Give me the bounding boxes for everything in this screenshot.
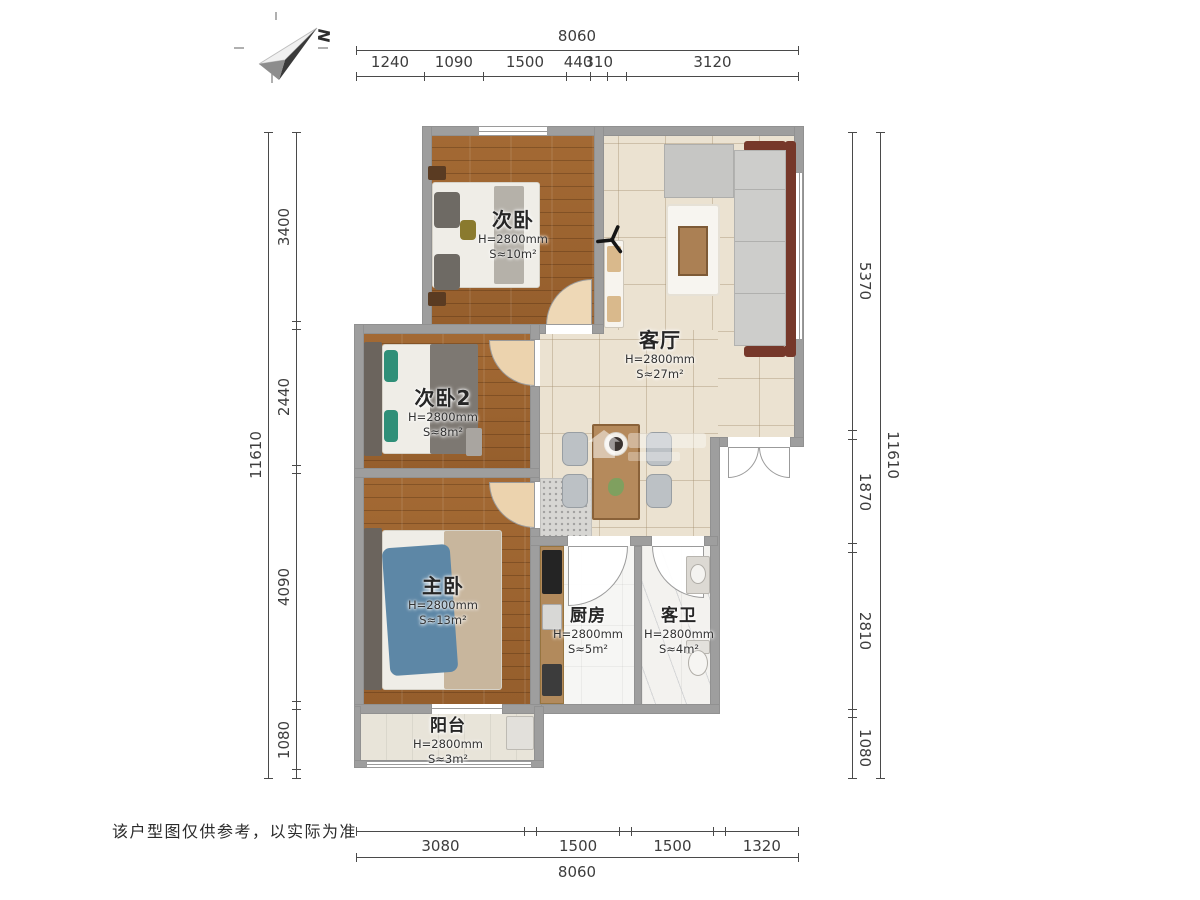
wall-left-mid [354,324,364,714]
wall-bedroom-bottom [354,324,546,334]
room-height: H=2800mm [383,410,503,425]
watermark-text-ghost [628,452,680,461]
north-arrow-icon [243,16,333,86]
dimension-label: 11610 [884,431,902,479]
room-name: 客卫 [630,606,728,627]
dimension-label: 1090 [435,53,473,71]
dimension-chain-left-total: 11610 [248,132,278,778]
wall-bedroom-divider [354,468,540,478]
room-area: S≈8m² [383,425,503,440]
dimension-segment: 11610 [248,132,278,778]
dimension-segment: 1870 [844,440,874,544]
room-name: 主卧 [383,574,503,598]
coffee-table [678,226,708,276]
room-label-balcony: 阳台 H=2800mm S≈3m² [390,716,506,767]
stove [542,664,562,696]
room-area: S≈10m² [453,247,573,262]
dimension-segment: 1320 [726,826,798,852]
headboard [364,528,382,690]
room-height: H=2800mm [383,598,503,613]
dimension-label: 8060 [558,27,596,45]
fridge [542,550,562,594]
dimension-segment [276,465,306,473]
room-label-bathroom: 客卫 H=2800mm S≈4m² [630,606,728,657]
door-opening-kitchen [568,536,630,546]
room-label-secondary-bedroom: 次卧 H=2800mm S≈10m² [453,208,573,262]
dimension-segment: 8060 [356,852,798,878]
dimension-segment: 3400 [276,132,306,321]
dimension-chain-right-total: 11610 [872,132,902,778]
room-label-living-room: 客厅 H=2800mm S≈27m² [600,328,720,382]
room-area: S≈13m² [383,613,503,628]
dimension-segment [276,701,306,709]
room-label-secondary-bedroom-2: 次卧2 H=2800mm S≈8m² [383,386,503,440]
dimension-segment [619,826,631,852]
room-height: H=2800mm [630,627,728,642]
wall-entry-stub [790,437,804,447]
dimension-chain-bottom-total: 8060 [356,852,798,878]
window-living-right [795,172,803,340]
room-area: S≈3m² [390,752,506,767]
wall-balcony-left [354,706,361,766]
door-opening-secondary-bedroom [546,324,592,334]
dimension-label: 3120 [693,53,731,71]
watermark-text-ghost [628,433,706,448]
headboard [364,342,382,456]
dimension-segment: 2440 [276,330,306,466]
dimension-segment: 1500 [484,56,566,82]
room-name: 次卧 [453,208,573,232]
room-area: S≈4m² [630,642,728,657]
room-name: 阳台 [390,716,506,737]
sofa [734,150,786,346]
dimension-segment: 1240 [356,56,424,82]
washing-machine [506,716,534,750]
room-height: H=2800mm [453,232,573,247]
wall-balcony-top [354,704,432,714]
cabinet-shelf [607,296,621,322]
dimension-chain-bottom-segments: 3080150015001320 [356,826,798,852]
ceiling-fan-icon [594,222,630,258]
dimension-segment: 4090 [276,474,306,702]
window-bedroom-top [478,126,548,136]
wall-corridor [530,528,540,714]
room-height: H=2800mm [540,627,636,642]
nightstand [428,292,446,306]
disclaimer-note: 该户型图仅供参考，以实际为准 [112,818,357,842]
dimension-label: 2440 [275,378,293,416]
dimension-segment: 1080 [276,710,306,770]
room-label-kitchen: 厨房 H=2800mm S≈5m² [540,606,636,657]
dimension-label: 8060 [558,863,596,881]
dining-chair [562,474,588,508]
dimension-segment: 5370 [844,132,874,431]
entry-door-right-leaf [759,447,790,478]
wall-bath-top-stub [704,536,718,546]
dimension-segment: 1080 [844,718,874,778]
room-name: 厨房 [540,606,636,627]
balcony-sliding-door [432,704,502,714]
room-name: 客厅 [600,328,720,352]
wall-kitchen-bath-top [630,536,652,546]
dimension-label: 1080 [275,721,293,759]
dimension-segment: 2810 [844,553,874,709]
dimension-segment [525,826,537,852]
room-area: S≈27m² [600,367,720,382]
entry-door-opening [728,437,790,447]
wall-kitchen-top [530,536,568,546]
dimension-chain-right-segments: 5370187028101080 [844,132,874,778]
room-height: H=2800mm [600,352,720,367]
floorplan-canvas: N [0,0,1200,900]
door-opening-bathroom [652,536,704,546]
dining-chair [646,474,672,508]
dimension-label: 1240 [371,53,409,71]
dimension-segment: 11610 [872,132,902,778]
sofa-frame-bottom [744,346,786,357]
dimension-segment [276,321,306,329]
sofa-frame-back [785,141,796,357]
wall-right-lower [710,437,720,714]
entry-door-left-leaf [728,447,759,478]
room-label-master-bedroom: 主卧 H=2800mm S≈13m² [383,574,503,628]
dimension-segment [607,56,627,82]
dimension-segment [276,770,306,778]
room-height: H=2800mm [390,737,506,752]
dimension-chain-top-segments: 1240109015004403103120 [356,56,798,82]
dimension-label: 4090 [275,568,293,606]
room-name: 次卧2 [383,386,503,410]
balcony-sliding-door-line [432,708,502,709]
dimension-segment: 310 [590,56,607,82]
dimension-label: 11610 [247,431,265,479]
room-area: S≈5m² [540,642,636,657]
wall-balcony-right [534,706,544,768]
dimension-chain-left-segments: 3400244040901080 [276,132,306,778]
dimension-label: 1500 [506,53,544,71]
dimension-segment: 1500 [537,826,619,852]
wash-basin [690,564,706,584]
wall-bottom [530,704,720,714]
dimension-segment: 3120 [627,56,798,82]
wall-corridor [530,324,540,340]
dimension-segment: 3080 [356,826,525,852]
dimension-segment [714,826,726,852]
nightstand [428,166,446,180]
dining-chair [562,432,588,466]
sofa-chaise [664,144,734,198]
dimension-segment: 1500 [631,826,713,852]
north-label: N [314,28,333,42]
dimension-segment: 1090 [424,56,484,82]
dimension-label: 3400 [275,208,293,246]
teal-pillow [384,350,398,382]
